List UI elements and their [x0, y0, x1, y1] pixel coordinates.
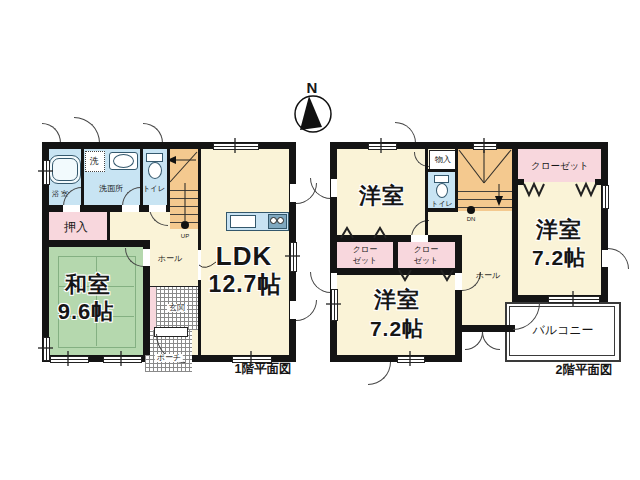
wall	[601, 142, 608, 302]
window	[43, 337, 50, 361]
room-top-left-label: 洋室	[359, 185, 405, 207]
door-arc	[482, 332, 500, 350]
door-arc	[74, 117, 100, 143]
toilet-bowl-1f	[148, 162, 162, 179]
wall	[512, 149, 518, 302]
wall	[428, 169, 455, 172]
window	[473, 143, 497, 150]
ldk-size-label: 12.7帖	[209, 273, 282, 296]
wall	[330, 268, 458, 275]
entrance-label: 玄関	[167, 304, 187, 312]
floorplan-canvas: 浴 室 洗 洗面所 トイレ UP LDK 12.7帖 押入 和室 9.6帖 ホー…	[0, 0, 640, 480]
stairs-2f-upper	[458, 149, 512, 184]
door-arc	[395, 122, 416, 143]
closet-a-label2: ゼット	[353, 257, 378, 265]
window	[290, 242, 297, 272]
washitsu-size-label: 9.6帖	[58, 301, 115, 323]
dn-label: DN	[467, 216, 476, 222]
door-gap	[143, 249, 150, 266]
stairs-up-dot	[181, 221, 189, 229]
stairs-1f-upper	[170, 149, 198, 183]
window	[213, 143, 259, 150]
wall	[425, 149, 428, 238]
wall	[330, 142, 337, 362]
room-bottom-size-label: 7.2帖	[370, 318, 424, 339]
door-gap	[331, 179, 337, 197]
floor2-caption: 2階平面図	[556, 364, 613, 377]
entrance-step-line	[150, 286, 198, 287]
closet-front-stub	[518, 179, 524, 185]
washitsu-name-label: 和室	[65, 274, 111, 296]
wall	[330, 355, 462, 362]
door-gap	[290, 184, 296, 202]
room-right-name-label: 洋室	[536, 219, 582, 241]
stove-burner	[270, 217, 277, 224]
window	[548, 296, 600, 303]
toilet-icon-1f	[146, 153, 163, 162]
bath-label: 浴 室	[52, 190, 68, 197]
door-gap	[63, 205, 80, 212]
wall	[455, 149, 458, 212]
bathtub-inner	[52, 158, 78, 181]
compass-north-label: N	[307, 80, 318, 95]
wall	[330, 235, 458, 242]
door-gap	[198, 250, 201, 280]
window	[50, 356, 89, 363]
wall	[455, 325, 515, 332]
door-arc	[143, 123, 163, 143]
storage-label: 物入	[435, 156, 451, 164]
door-arc	[310, 272, 331, 293]
closet-b-label1: クロー	[414, 246, 438, 254]
up-label: UP	[181, 233, 189, 239]
floor1-caption: 1階平面図	[235, 363, 292, 376]
toilet-bowl-2f	[436, 183, 448, 198]
wall	[428, 208, 455, 212]
washroom-label: 洗面所	[99, 185, 123, 193]
oshiire-label: 押入	[64, 221, 88, 233]
wall	[167, 149, 170, 207]
door-arc	[310, 178, 331, 199]
toilet-label-2f: トイレ	[431, 200, 453, 207]
closet-a-label1: クロー	[353, 246, 377, 254]
closet-b-label2: ゼット	[414, 257, 439, 265]
room-bottom-name-label: 洋室	[374, 289, 420, 311]
door-gap	[149, 205, 166, 212]
door-gap	[455, 273, 462, 290]
porch-label: ポーチ	[155, 354, 183, 362]
door-gap	[122, 205, 139, 212]
hall-label-2f: ホール	[476, 272, 500, 280]
door-arc	[608, 248, 629, 269]
stove-burner	[277, 217, 284, 224]
stairs-2f-treads	[458, 184, 512, 211]
window	[602, 185, 609, 209]
hall-label-1f: ホール	[158, 255, 182, 263]
closet-top-label: クローゼット	[531, 161, 589, 171]
door-gap	[602, 250, 608, 267]
wall	[455, 235, 462, 362]
door-arc	[465, 332, 483, 350]
compass-icon	[295, 96, 331, 132]
door-gap	[290, 301, 296, 319]
balcony-label: バルコニー	[532, 324, 593, 336]
sink-bowl	[113, 154, 134, 168]
toilet-icon-2f	[434, 175, 449, 183]
wall	[140, 149, 143, 207]
room-right-size-label: 7.2帖	[532, 247, 586, 268]
ldk-name-label: LDK	[216, 243, 272, 269]
door-arc	[296, 300, 317, 321]
door-arc	[42, 123, 61, 143]
window	[43, 160, 50, 185]
stairs-down-dot	[467, 206, 475, 214]
washer-label: 洗	[90, 157, 99, 166]
window	[103, 356, 142, 363]
wall	[81, 149, 84, 205]
door-gap	[411, 235, 428, 242]
window	[397, 356, 425, 363]
window	[368, 143, 397, 150]
wall	[107, 212, 110, 240]
door-arc	[368, 362, 391, 385]
kitchen-sink	[230, 215, 256, 228]
wall	[393, 242, 398, 268]
wall	[42, 240, 150, 247]
toilet-label-1f: トイレ	[142, 185, 165, 193]
window	[331, 289, 338, 321]
